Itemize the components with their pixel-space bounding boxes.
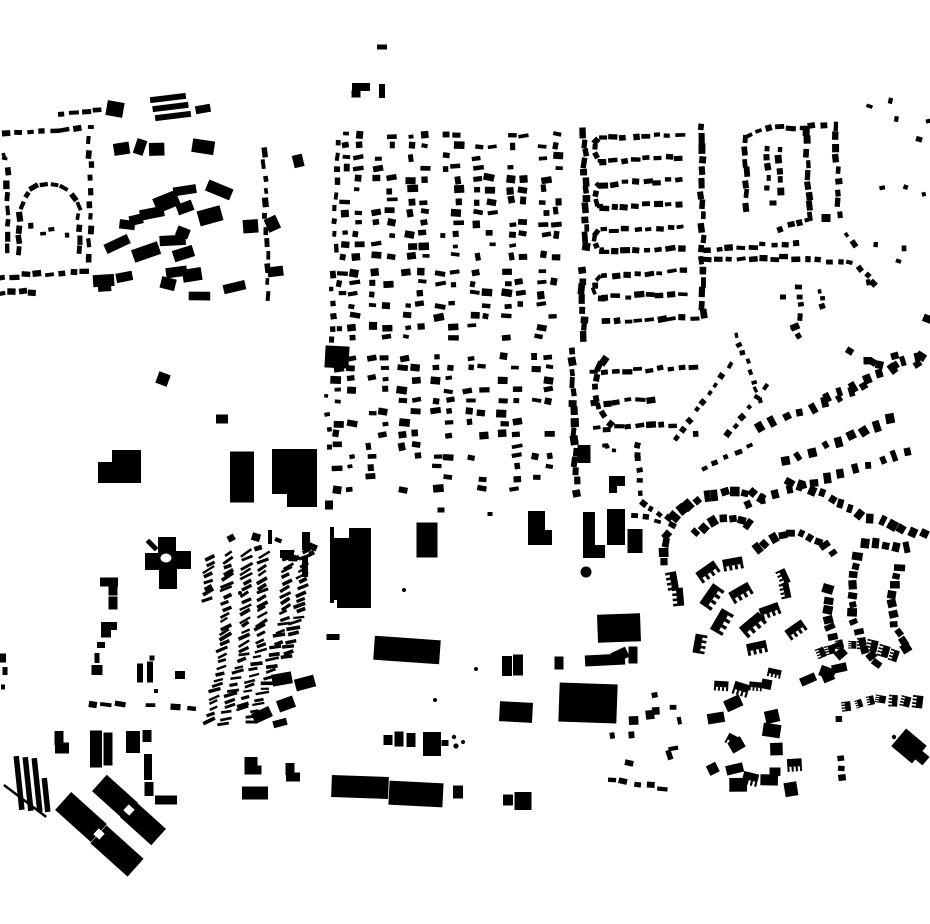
map-canvas	[0, 0, 930, 924]
building-footprint-map	[0, 0, 930, 924]
cluster-br-dots	[892, 735, 896, 739]
cluster-tl-rowhouse-bars	[150, 93, 191, 121]
cluster-church-hole	[161, 554, 172, 563]
